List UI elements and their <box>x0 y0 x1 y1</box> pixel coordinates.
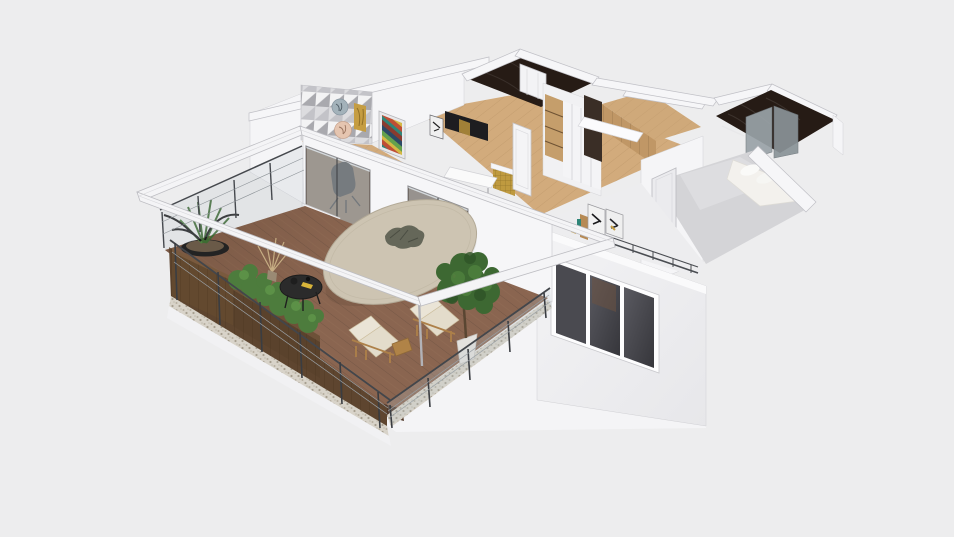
wardrobe-open-shelves <box>545 94 563 162</box>
floorplan-3d-viewport[interactable] <box>0 0 954 537</box>
interior-white-door <box>513 123 531 196</box>
wall-plate-art-top <box>332 99 348 115</box>
kettle <box>291 278 298 285</box>
gallery-frames <box>430 115 443 139</box>
